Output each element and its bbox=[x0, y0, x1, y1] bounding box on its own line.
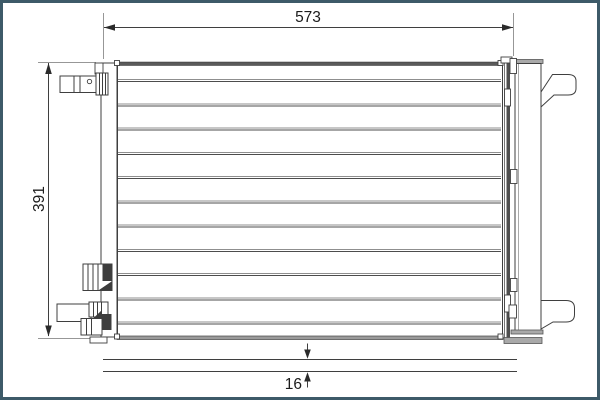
condenser bbox=[57, 57, 576, 344]
dimension-height: 391 bbox=[31, 63, 96, 339]
bracket-shape bbox=[541, 301, 575, 330]
tank-bottom-cap bbox=[511, 330, 543, 334]
corner-marker bbox=[498, 334, 503, 339]
tank-clip bbox=[511, 279, 518, 292]
header-bottom-bar bbox=[504, 338, 542, 344]
dark-fitting bbox=[103, 265, 113, 282]
dimension-width: 573 bbox=[104, 9, 514, 59]
connector-block bbox=[60, 76, 96, 93]
arrow-up-icon bbox=[304, 372, 311, 381]
core-tubes bbox=[118, 80, 501, 325]
bracket-shape bbox=[541, 75, 576, 108]
left-connector-middle bbox=[83, 264, 112, 291]
mounting-bracket-top bbox=[541, 75, 576, 108]
dark-fitting bbox=[102, 314, 112, 330]
dimension-depth: 16 bbox=[103, 344, 517, 394]
left-tank-body bbox=[101, 63, 117, 337]
dimension-depth-label: 16 bbox=[285, 376, 302, 393]
core-bottom-plate bbox=[117, 336, 503, 340]
dimension-height-label: 391 bbox=[31, 186, 48, 212]
arrow-down-icon bbox=[304, 350, 311, 359]
left-tank bbox=[90, 63, 117, 343]
drawing-page: 573 391 16 bbox=[0, 0, 600, 400]
condenser-technical-drawing: 573 391 16 bbox=[0, 0, 600, 400]
header-notch-top bbox=[505, 89, 511, 106]
left-tank-bottom-step bbox=[90, 337, 107, 343]
arrow-down-icon bbox=[45, 326, 52, 337]
left-tank-top-stub bbox=[95, 63, 103, 74]
mounting-bracket-bottom bbox=[541, 301, 575, 330]
left-connector-top bbox=[60, 73, 108, 95]
port-hole bbox=[87, 79, 91, 83]
corner-marker bbox=[115, 61, 120, 66]
tank-clip bbox=[510, 59, 517, 74]
arrow-right-icon bbox=[502, 24, 513, 31]
receiver-drier-tank bbox=[509, 59, 543, 335]
corner-marker bbox=[115, 334, 120, 339]
arrow-left-icon bbox=[104, 24, 115, 31]
core-top-plate bbox=[117, 62, 503, 66]
core bbox=[115, 61, 504, 340]
arrow-up-icon bbox=[45, 63, 52, 74]
tank-clip bbox=[511, 170, 518, 184]
tank-clip bbox=[509, 305, 517, 318]
dimension-width-label: 573 bbox=[295, 9, 321, 26]
